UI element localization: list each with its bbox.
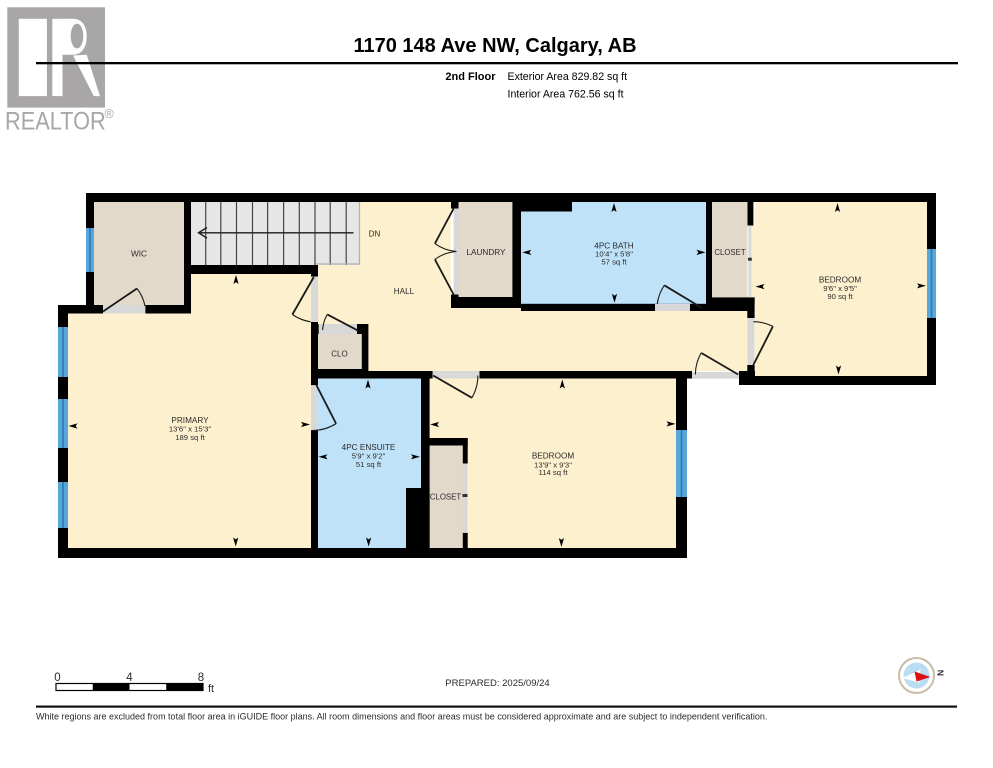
svg-text:®: ® <box>105 107 115 121</box>
svg-text:51 sq ft: 51 sq ft <box>356 460 382 469</box>
svg-text:DN: DN <box>369 229 381 238</box>
svg-text:Exterior Area 829.82 sq ft: Exterior Area 829.82 sq ft <box>508 71 628 83</box>
svg-text:57 sq ft: 57 sq ft <box>601 258 627 267</box>
svg-text:REALTOR: REALTOR <box>5 107 106 135</box>
svg-text:PREPARED: 2025/09/24: PREPARED: 2025/09/24 <box>445 678 549 689</box>
svg-text:White regions are excluded fro: White regions are excluded from total fl… <box>36 712 767 722</box>
svg-text:CLOSET: CLOSET <box>714 248 745 257</box>
svg-text:0: 0 <box>54 672 60 684</box>
svg-text:BEDROOM: BEDROOM <box>532 452 574 461</box>
svg-text:WIC: WIC <box>131 250 147 259</box>
svg-text:LAUNDRY: LAUNDRY <box>467 248 507 257</box>
svg-text:HALL: HALL <box>394 287 415 296</box>
svg-text:2nd Floor: 2nd Floor <box>445 71 496 83</box>
svg-text:CLOSET: CLOSET <box>430 493 461 502</box>
svg-text:ft: ft <box>208 683 214 695</box>
svg-text:114 sq ft: 114 sq ft <box>539 468 569 477</box>
svg-text:90 sq ft: 90 sq ft <box>827 292 853 301</box>
svg-text:1170 148 Ave NW, Calgary, AB: 1170 148 Ave NW, Calgary, AB <box>353 35 636 57</box>
svg-text:CLO: CLO <box>331 350 347 359</box>
svg-text:N: N <box>936 670 946 676</box>
svg-text:4: 4 <box>126 672 133 684</box>
svg-text:8: 8 <box>198 672 204 684</box>
svg-text:Interior Area 762.56 sq ft: Interior Area 762.56 sq ft <box>508 89 624 101</box>
svg-text:189 sq ft: 189 sq ft <box>175 433 205 442</box>
